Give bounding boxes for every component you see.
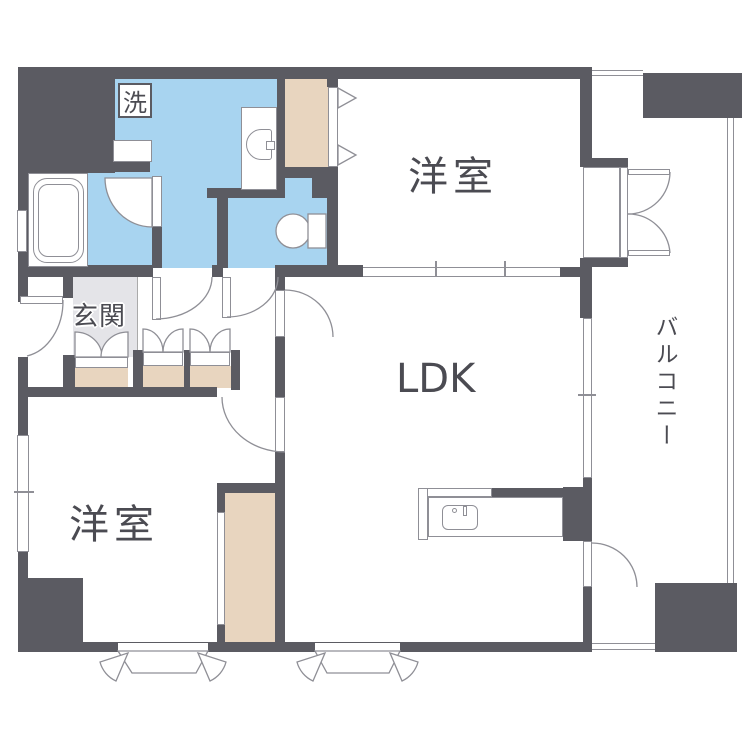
symbol-overlay bbox=[0, 0, 750, 750]
closet-b-door-right bbox=[210, 329, 230, 352]
washroom-door-arc bbox=[156, 277, 212, 319]
bay-window-1 bbox=[118, 651, 208, 673]
bay-window-1-fan-left bbox=[100, 653, 128, 681]
room-label-western-top: 洋室 bbox=[408, 144, 498, 202]
bathroom-door-swing bbox=[105, 178, 152, 227]
room-label-entrance: 玄関 bbox=[72, 296, 126, 333]
bay-window-2 bbox=[315, 651, 400, 673]
shoe-cabinet-door-right bbox=[101, 332, 128, 357]
bay-window-2-fan-left bbox=[297, 653, 325, 681]
bay-window-1-fan-right bbox=[198, 653, 226, 681]
toilet-tank bbox=[308, 214, 326, 248]
closet-open-arrow-2 bbox=[338, 145, 356, 165]
toilet-door-arc bbox=[227, 277, 278, 317]
room-label-balcony: バルコニー bbox=[653, 315, 681, 570]
closet-a-door-right bbox=[163, 329, 183, 352]
shoe-cabinet-door-left bbox=[75, 332, 102, 357]
closet-b-door-left bbox=[190, 329, 210, 352]
ldk-balcony-door-arc bbox=[592, 543, 637, 587]
washer-label: 洗 bbox=[123, 83, 147, 118]
french-door-arc-top bbox=[628, 172, 670, 214]
bay-window-2-fan-right bbox=[390, 653, 418, 681]
toilet-bowl bbox=[276, 214, 310, 248]
bottom-room-door-arc bbox=[222, 397, 285, 452]
closet-a-door-left bbox=[143, 329, 163, 352]
washer-box: 洗 bbox=[118, 83, 152, 118]
room-label-ldk: LDK bbox=[396, 356, 475, 402]
closet-open-arrow-1 bbox=[338, 88, 356, 108]
room-label-western-bottom: 洋室 bbox=[69, 492, 159, 550]
french-door-arc-bottom bbox=[628, 214, 670, 253]
floor-plan: 洗 洋室 LDK 洋室 玄関 バルコニー bbox=[0, 0, 750, 750]
entrance-door-arc bbox=[27, 300, 63, 356]
hall-ldk-door-arc bbox=[285, 290, 333, 337]
